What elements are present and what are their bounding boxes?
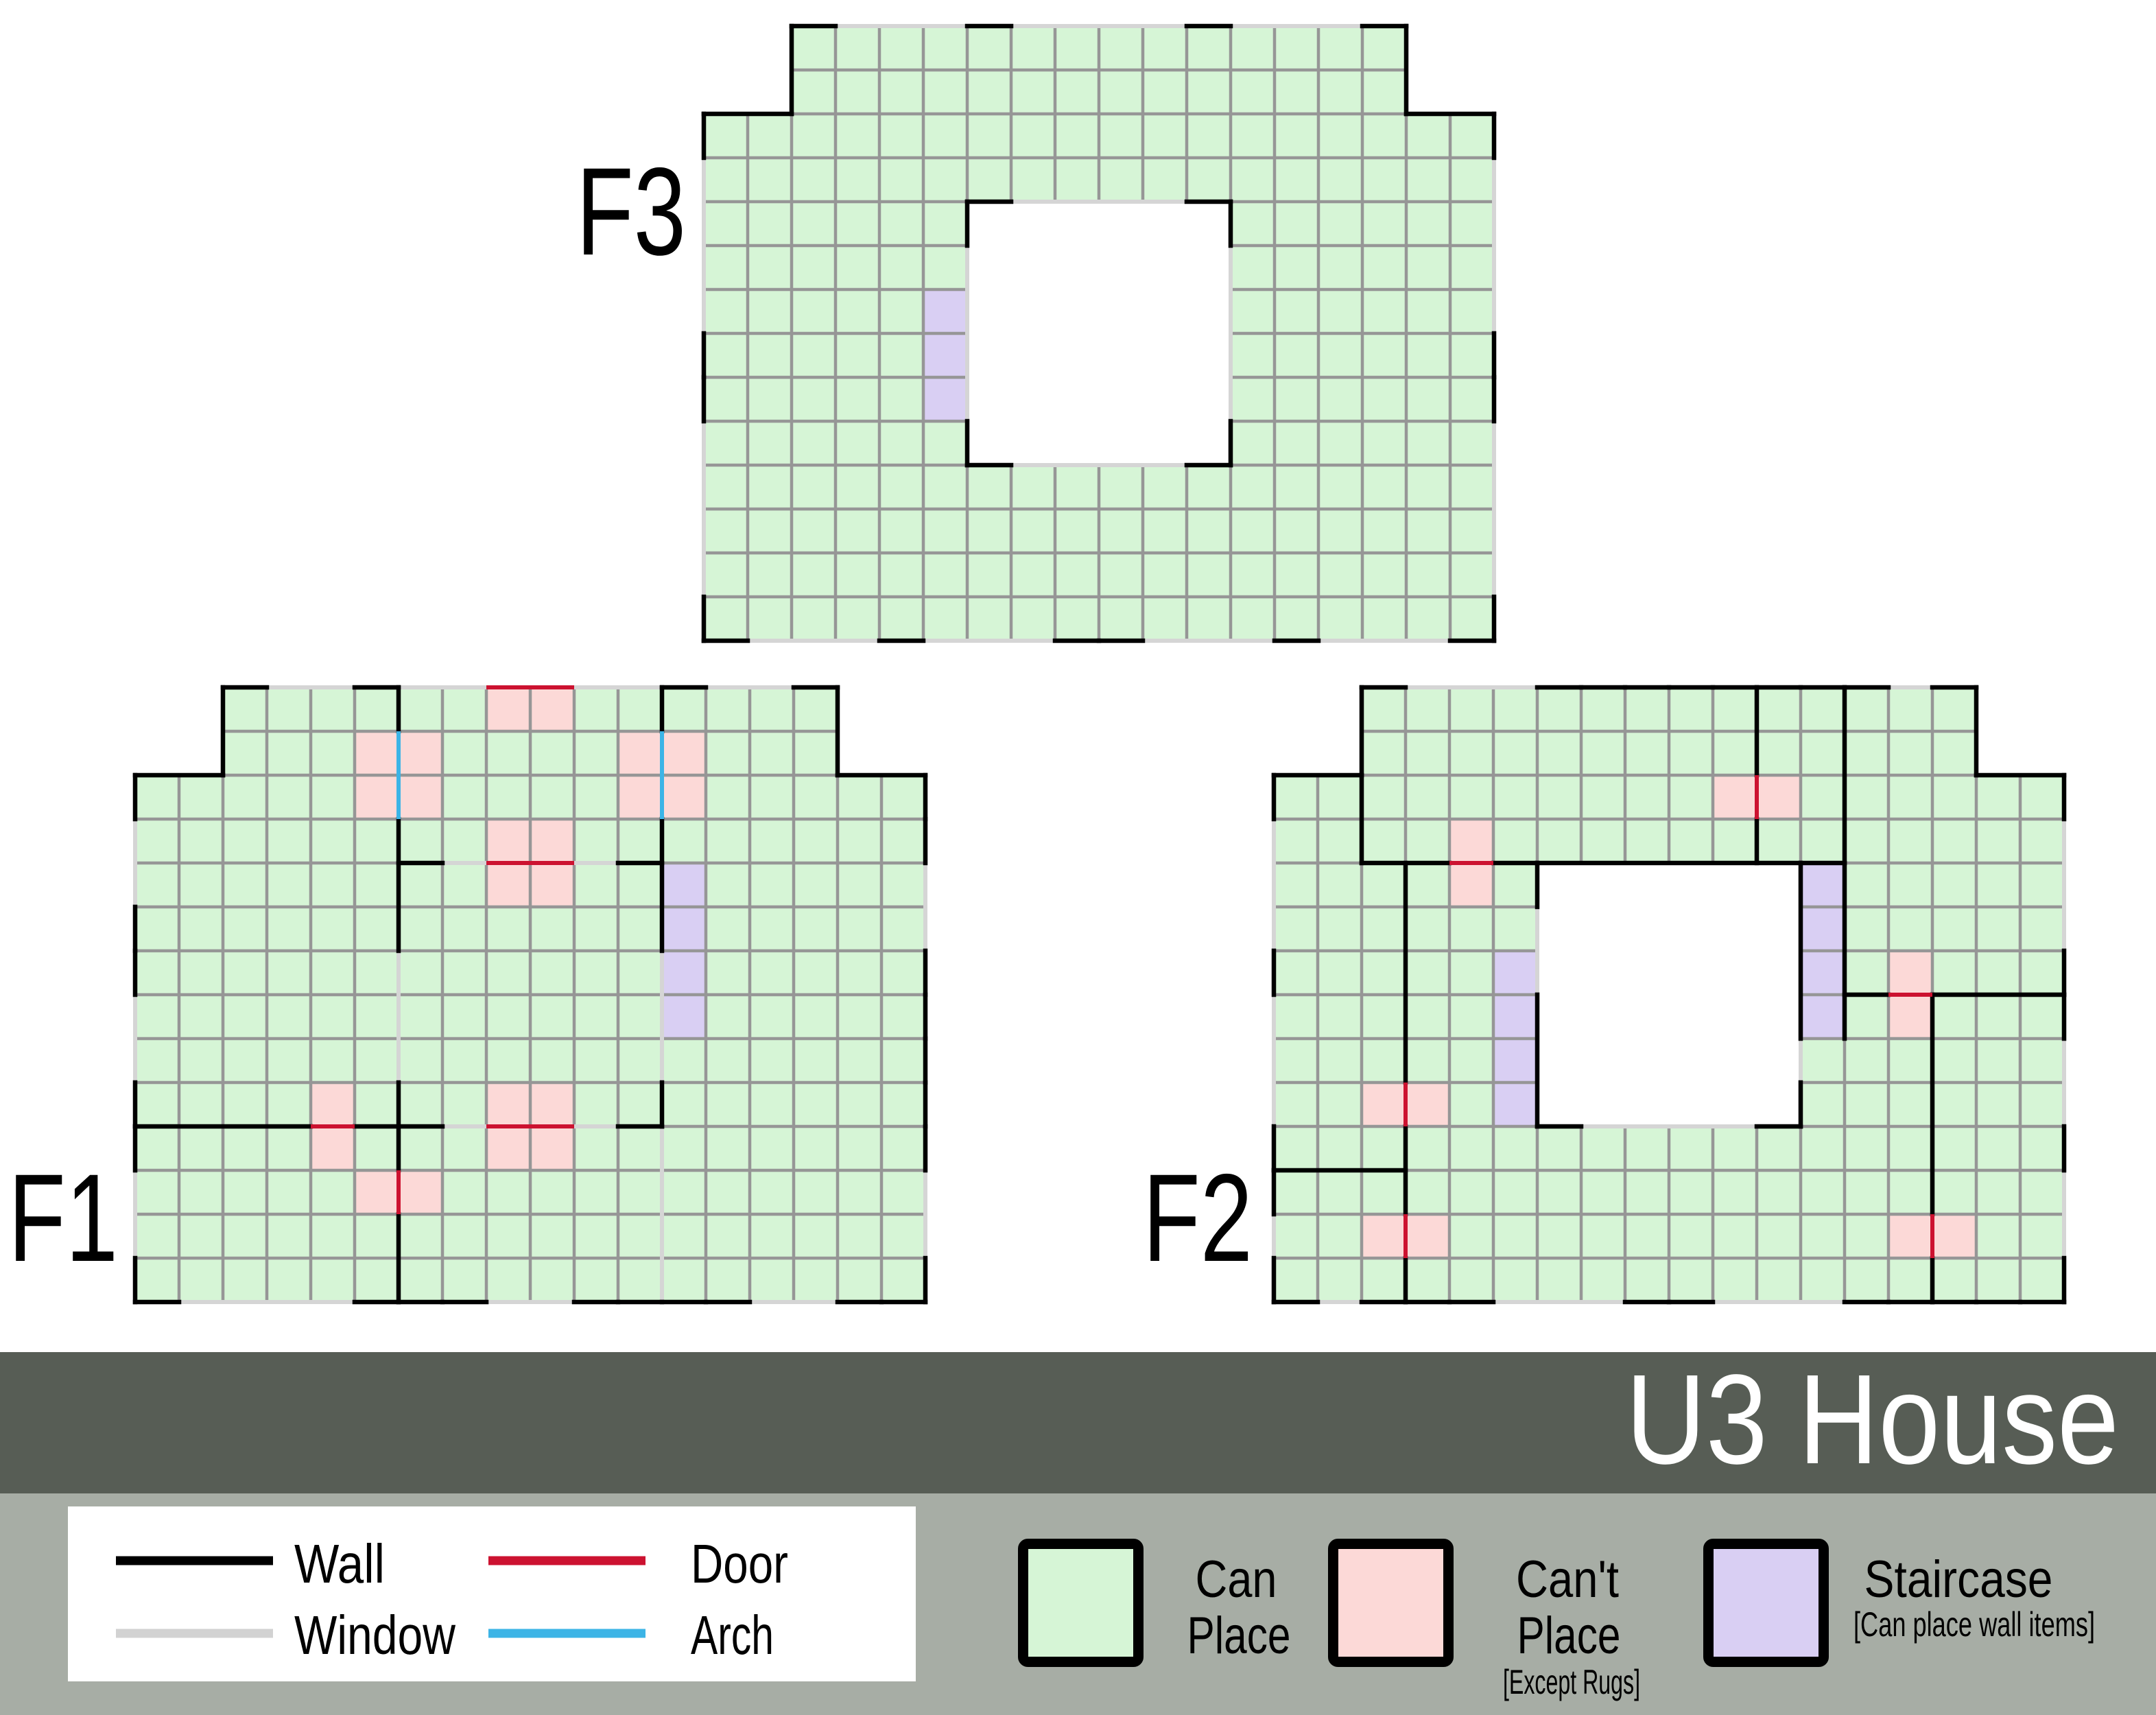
svg-text:F3: F3: [576, 141, 686, 281]
svg-text:F1: F1: [8, 1148, 118, 1288]
svg-text:Arch: Arch: [691, 1605, 774, 1666]
svg-text:Staircase: Staircase: [1864, 1550, 2053, 1609]
svg-text:[Except Rugs]: [Except Rugs]: [1503, 1663, 1640, 1701]
svg-text:U3 House: U3 House: [1626, 1349, 2119, 1491]
svg-text:Place: Place: [1187, 1607, 1291, 1665]
svg-text:Wall: Wall: [294, 1533, 385, 1594]
svg-text:[Can place wall items]: [Can place wall items]: [1853, 1605, 2095, 1644]
svg-text:Door: Door: [691, 1533, 788, 1594]
svg-text:Can't: Can't: [1516, 1550, 1619, 1609]
svg-text:Can: Can: [1196, 1550, 1277, 1609]
svg-text:Place: Place: [1517, 1607, 1621, 1665]
svg-text:Window: Window: [294, 1605, 455, 1666]
svg-text:F2: F2: [1143, 1148, 1253, 1288]
